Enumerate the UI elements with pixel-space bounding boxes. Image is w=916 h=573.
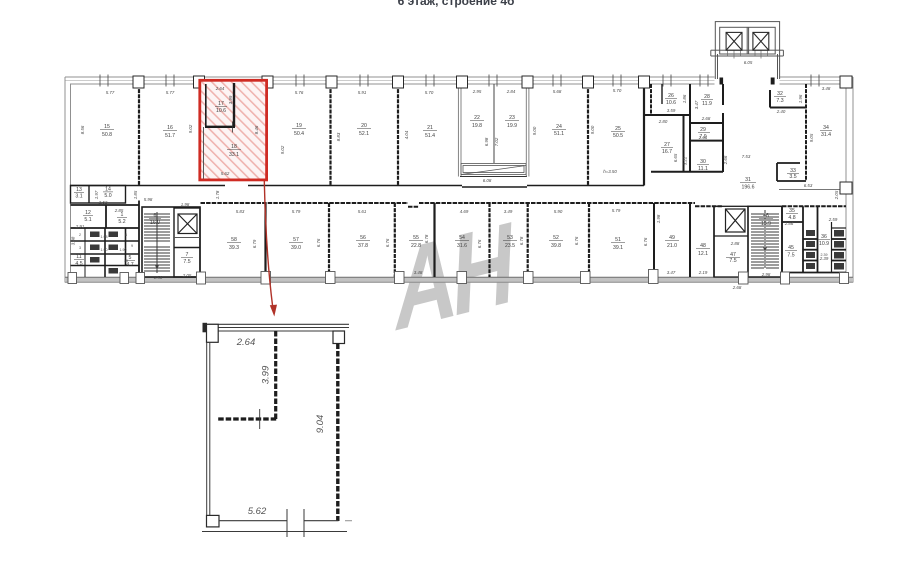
svg-text:23: 23 xyxy=(509,115,515,121)
svg-text:11.9: 11.9 xyxy=(702,101,712,107)
svg-text:5.68: 5.68 xyxy=(553,89,562,94)
svg-text:2.05: 2.05 xyxy=(834,190,839,200)
svg-text:2.91: 2.91 xyxy=(75,224,85,229)
svg-text:1.98: 1.98 xyxy=(656,214,661,223)
svg-text:5.62: 5.62 xyxy=(248,506,267,517)
svg-text:30: 30 xyxy=(700,159,706,165)
svg-text:19: 19 xyxy=(296,123,302,129)
svg-text:2.05: 2.05 xyxy=(182,273,192,278)
svg-text:3.38: 3.38 xyxy=(71,236,76,245)
svg-text:13: 13 xyxy=(76,187,82,193)
svg-text:6.78: 6.78 xyxy=(424,234,429,243)
svg-text:31: 31 xyxy=(745,177,751,183)
svg-text:6.98: 6.98 xyxy=(484,137,489,146)
svg-text:3.48: 3.48 xyxy=(414,270,423,275)
svg-text:4.69: 4.69 xyxy=(460,209,469,214)
svg-text:32: 32 xyxy=(777,91,783,97)
svg-text:6.78: 6.78 xyxy=(519,236,524,245)
svg-text:2.59: 2.59 xyxy=(828,217,838,222)
svg-text:18: 18 xyxy=(231,144,237,150)
svg-text:57: 57 xyxy=(293,237,299,243)
svg-text:22.8: 22.8 xyxy=(411,243,421,249)
svg-text:3.5: 3.5 xyxy=(789,174,796,180)
svg-text:15.9: 15.9 xyxy=(761,221,771,227)
svg-text:6.76: 6.76 xyxy=(574,236,579,245)
svg-text:5.79: 5.79 xyxy=(612,208,621,213)
svg-text:2.84: 2.84 xyxy=(506,89,516,94)
svg-text:2.86: 2.86 xyxy=(784,221,794,226)
svg-text:48: 48 xyxy=(700,243,706,249)
svg-text:196.6: 196.6 xyxy=(742,185,755,191)
svg-text:53: 53 xyxy=(507,235,513,241)
svg-text:9.00: 9.00 xyxy=(532,126,537,135)
svg-text:7.5: 7.5 xyxy=(183,259,190,265)
svg-text:1.90: 1.90 xyxy=(120,248,127,252)
svg-text:5.70: 5.70 xyxy=(425,90,434,95)
svg-text:50.5: 50.5 xyxy=(613,133,623,139)
svg-text:3.1: 3.1 xyxy=(75,194,82,200)
svg-text:52: 52 xyxy=(553,235,559,241)
svg-text:5.79: 5.79 xyxy=(292,209,301,214)
svg-text:9.00: 9.00 xyxy=(590,125,595,134)
svg-text:12.1: 12.1 xyxy=(698,251,708,257)
svg-text:6.76: 6.76 xyxy=(477,239,482,248)
svg-text:5.62: 5.62 xyxy=(221,171,230,176)
svg-text:16.0: 16.0 xyxy=(150,220,160,226)
svg-text:39.1: 39.1 xyxy=(613,245,623,251)
svg-text:51.1: 51.1 xyxy=(554,131,564,137)
svg-text:50.4: 50.4 xyxy=(294,131,304,137)
svg-text:49: 49 xyxy=(669,235,675,241)
svg-text:2.40: 2.40 xyxy=(776,109,786,114)
svg-text:35: 35 xyxy=(789,208,795,214)
svg-text:1.78: 1.78 xyxy=(215,190,220,199)
svg-text:52.1: 52.1 xyxy=(359,131,369,137)
svg-text:2.88: 2.88 xyxy=(730,241,740,246)
svg-text:2: 2 xyxy=(79,233,81,237)
svg-text:2.66: 2.66 xyxy=(723,155,728,165)
svg-text:5.77: 5.77 xyxy=(106,90,115,95)
svg-text:3.99: 3.99 xyxy=(228,95,233,104)
svg-text:5.2: 5.2 xyxy=(118,219,125,225)
svg-text:9: 9 xyxy=(131,244,133,248)
svg-text:6 этаж, строение 4б: 6 этаж, строение 4б xyxy=(398,0,515,8)
svg-text:1.58: 1.58 xyxy=(154,275,163,280)
svg-text:51: 51 xyxy=(615,237,621,243)
svg-text:2.52: 2.52 xyxy=(98,200,108,205)
svg-text:8.56: 8.56 xyxy=(80,125,85,134)
svg-text:9.04: 9.04 xyxy=(315,415,326,434)
svg-text:3.59: 3.59 xyxy=(667,108,676,113)
svg-text:39.0: 39.0 xyxy=(291,245,301,251)
svg-text:3.99: 3.99 xyxy=(261,365,272,384)
svg-text:14: 14 xyxy=(105,187,111,193)
svg-text:6.08: 6.08 xyxy=(483,178,492,183)
svg-text:33.1: 33.1 xyxy=(229,152,239,158)
svg-text:8.46: 8.46 xyxy=(254,125,259,134)
svg-text:7: 7 xyxy=(186,252,189,258)
svg-text:46: 46 xyxy=(763,213,769,219)
svg-text:5.1: 5.1 xyxy=(84,217,91,223)
svg-text:11: 11 xyxy=(76,254,81,260)
svg-text:19.8: 19.8 xyxy=(472,123,482,129)
svg-text:17: 17 xyxy=(218,101,224,107)
svg-text:2.64: 2.64 xyxy=(236,337,256,348)
svg-text:37.8: 37.8 xyxy=(358,243,368,249)
svg-text:2.68: 2.68 xyxy=(701,116,711,121)
svg-text:9.05: 9.05 xyxy=(809,133,814,142)
svg-text:7.5: 7.5 xyxy=(787,253,794,259)
svg-text:4.5: 4.5 xyxy=(75,261,82,267)
svg-text:51.4: 51.4 xyxy=(425,133,435,139)
svg-text:5: 5 xyxy=(129,255,132,261)
svg-text:51.7: 51.7 xyxy=(165,133,175,139)
svg-text:5.90: 5.90 xyxy=(554,209,563,214)
svg-text:28: 28 xyxy=(704,94,710,100)
svg-text:2.98: 2.98 xyxy=(761,272,771,277)
svg-text:2.19: 2.19 xyxy=(698,270,708,275)
svg-text:22: 22 xyxy=(474,115,480,121)
svg-text:45: 45 xyxy=(788,245,794,251)
svg-text:7.02: 7.02 xyxy=(494,137,499,146)
svg-text:16.7: 16.7 xyxy=(662,149,672,155)
svg-text:36: 36 xyxy=(821,234,827,240)
svg-text:6.76: 6.76 xyxy=(385,238,390,247)
svg-text:27: 27 xyxy=(664,142,670,148)
svg-text:39.8: 39.8 xyxy=(551,243,561,249)
svg-text:2.64: 2.64 xyxy=(215,86,225,91)
svg-text:12: 12 xyxy=(85,210,91,216)
svg-text:10.6: 10.6 xyxy=(666,100,676,106)
svg-text:6.65: 6.65 xyxy=(673,153,678,162)
svg-text:7.53: 7.53 xyxy=(742,154,751,159)
svg-text:7.5: 7.5 xyxy=(729,258,736,264)
svg-text:25: 25 xyxy=(615,126,621,132)
svg-text:6.05: 6.05 xyxy=(744,60,753,65)
svg-text:1.85: 1.85 xyxy=(133,190,138,199)
svg-text:5.0: 5.0 xyxy=(104,193,111,199)
svg-text:6.79: 6.79 xyxy=(252,239,257,248)
svg-text:29: 29 xyxy=(700,127,706,133)
svg-text:3.48: 3.48 xyxy=(822,86,831,91)
svg-text:6.76: 6.76 xyxy=(316,238,321,247)
svg-text:21.0: 21.0 xyxy=(667,243,677,249)
svg-text:3: 3 xyxy=(79,246,81,250)
svg-text:58: 58 xyxy=(231,237,237,243)
svg-text:31.6: 31.6 xyxy=(457,243,467,249)
svg-text:54: 54 xyxy=(459,235,465,241)
svg-text:1.96: 1.96 xyxy=(798,94,803,103)
svg-text:8: 8 xyxy=(125,233,127,237)
svg-text:20: 20 xyxy=(361,123,367,129)
svg-text:2.85: 2.85 xyxy=(114,208,124,213)
svg-text:55: 55 xyxy=(413,235,419,241)
svg-text:1.98: 1.98 xyxy=(181,202,190,207)
svg-text:11.1: 11.1 xyxy=(698,166,708,172)
svg-text:2.39: 2.39 xyxy=(819,256,829,261)
svg-text:5.98: 5.98 xyxy=(144,197,153,202)
svg-text:4.04: 4.04 xyxy=(404,130,409,139)
svg-text:5.91: 5.91 xyxy=(358,90,367,95)
svg-text:2.61: 2.61 xyxy=(698,135,708,140)
svg-text:50.8: 50.8 xyxy=(102,132,112,138)
svg-text:1.97: 1.97 xyxy=(94,190,99,199)
svg-text:1.90: 1.90 xyxy=(101,248,108,252)
svg-text:6.53: 6.53 xyxy=(804,183,813,188)
svg-text:34: 34 xyxy=(823,125,829,131)
svg-text:24: 24 xyxy=(556,124,562,130)
svg-text:26: 26 xyxy=(668,93,674,99)
svg-text:56: 56 xyxy=(360,235,366,241)
svg-text:10.9: 10.9 xyxy=(819,241,829,247)
svg-text:6: 6 xyxy=(154,213,157,219)
svg-text:3.22: 3.22 xyxy=(683,156,688,165)
svg-text:10.6: 10.6 xyxy=(216,108,226,114)
svg-text:16: 16 xyxy=(167,125,173,131)
svg-text:39.3: 39.3 xyxy=(229,245,239,251)
svg-text:1.86: 1.86 xyxy=(682,94,687,103)
svg-text:5.77: 5.77 xyxy=(166,90,175,95)
svg-text:21: 21 xyxy=(427,125,433,131)
svg-text:3.47: 3.47 xyxy=(694,100,699,109)
svg-text:1.98: 1.98 xyxy=(101,235,108,239)
svg-text:19.9: 19.9 xyxy=(507,123,517,129)
svg-text:3.47: 3.47 xyxy=(667,270,676,275)
svg-text:23.5: 23.5 xyxy=(505,243,515,249)
svg-text:7.3: 7.3 xyxy=(776,98,783,104)
svg-text:4.7: 4.7 xyxy=(126,262,133,268)
svg-text:31.4: 31.4 xyxy=(821,132,831,138)
svg-text:5.83: 5.83 xyxy=(236,209,245,214)
svg-text:h=3.50: h=3.50 xyxy=(603,169,617,174)
svg-text:5.76: 5.76 xyxy=(295,90,304,95)
svg-text:5.70: 5.70 xyxy=(613,88,622,93)
svg-text:3.49: 3.49 xyxy=(504,209,513,214)
svg-text:6.76: 6.76 xyxy=(643,237,648,246)
svg-text:2.68: 2.68 xyxy=(732,285,742,290)
svg-text:8.83: 8.83 xyxy=(336,132,341,141)
svg-text:2.95: 2.95 xyxy=(472,89,482,94)
svg-text:5.61: 5.61 xyxy=(358,209,367,214)
svg-text:15: 15 xyxy=(104,124,110,130)
svg-text:9.02: 9.02 xyxy=(280,145,285,154)
svg-text:9.02: 9.02 xyxy=(188,124,193,133)
svg-text:2.80: 2.80 xyxy=(658,119,668,124)
